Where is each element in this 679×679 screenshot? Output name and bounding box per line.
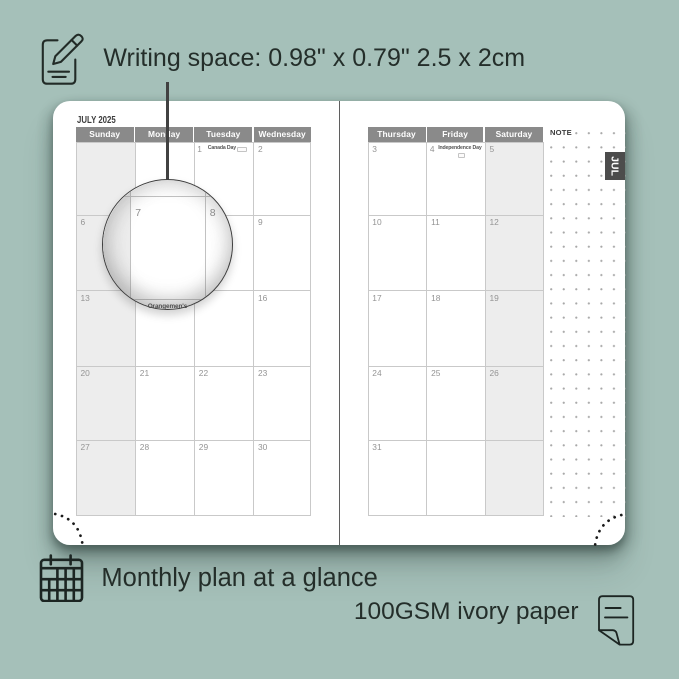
svg-text:JUL: JUL	[608, 156, 619, 176]
